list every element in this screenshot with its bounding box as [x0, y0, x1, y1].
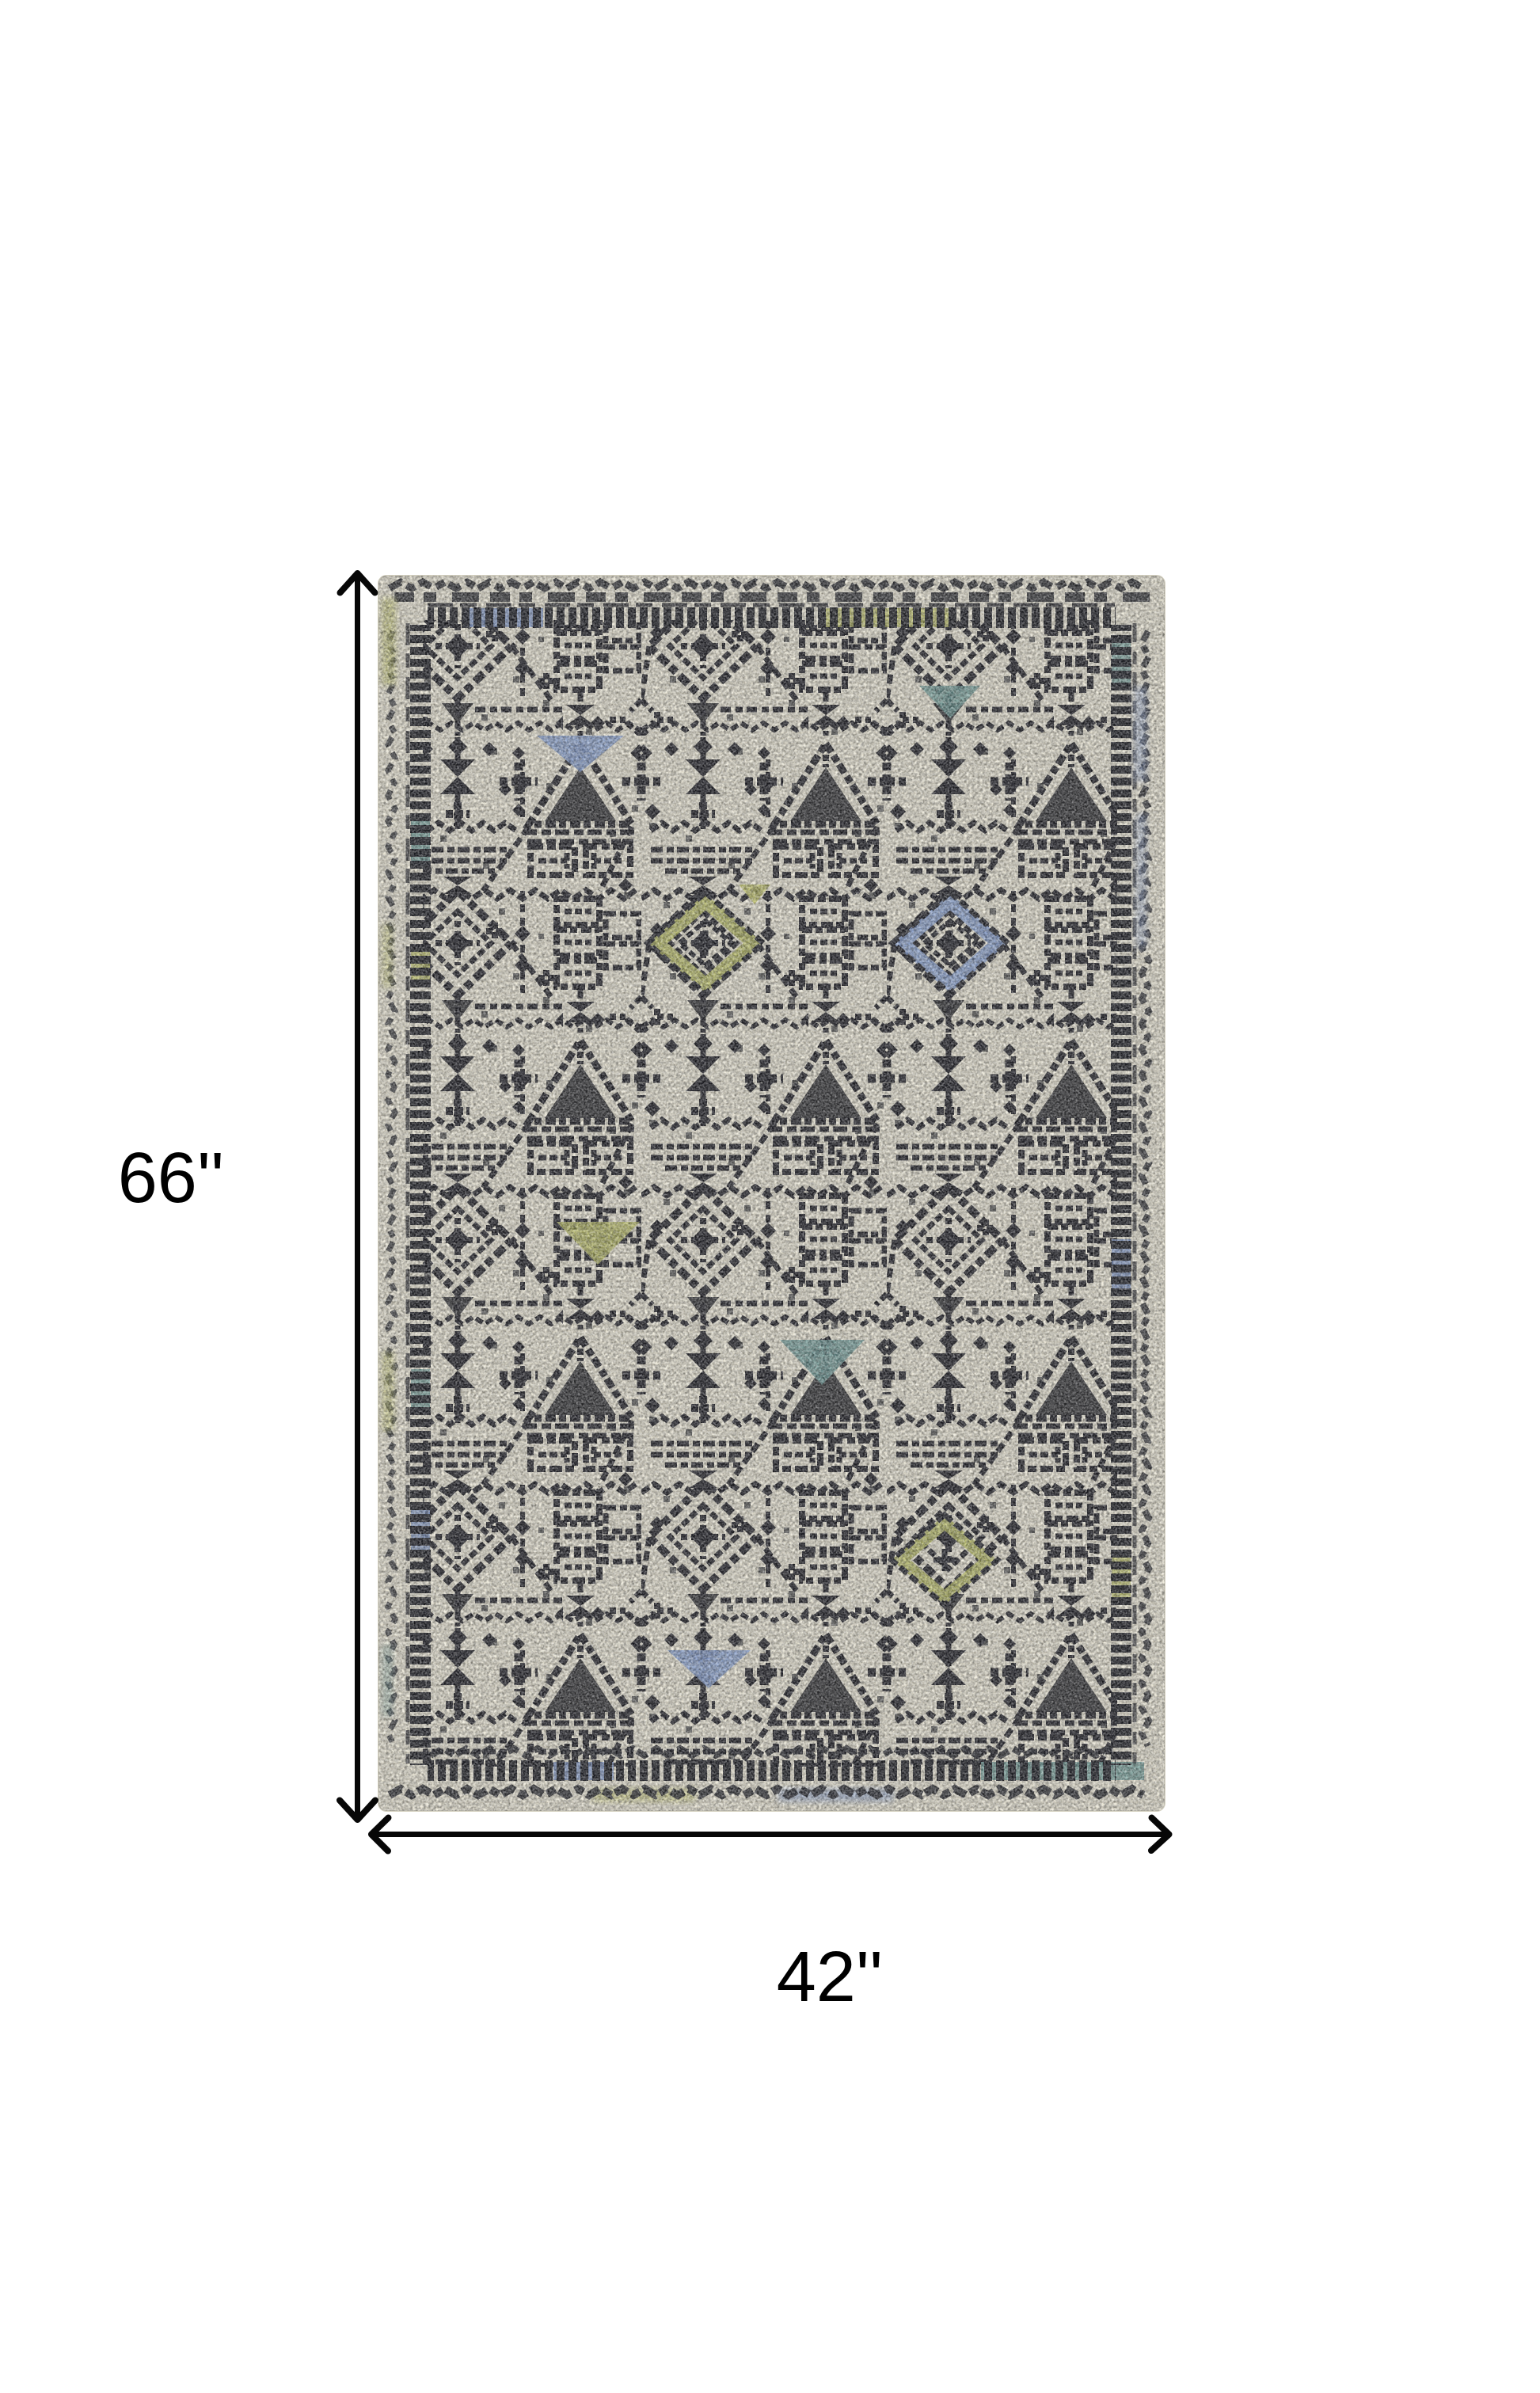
svg-text:66'': 66'': [118, 1139, 224, 1218]
svg-text:42'': 42'': [777, 1938, 883, 2017]
